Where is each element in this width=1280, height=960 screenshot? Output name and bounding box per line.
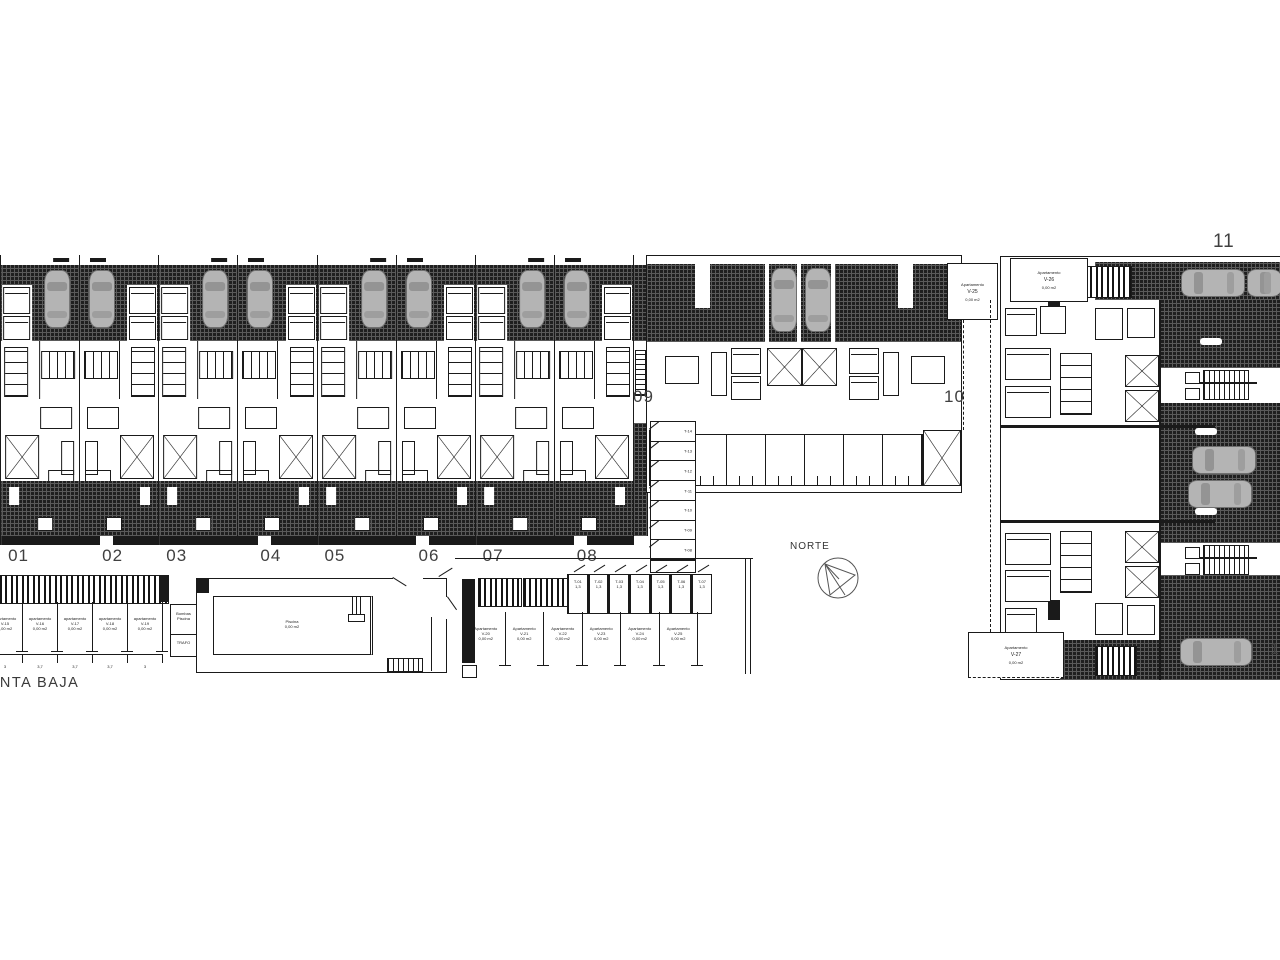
car-icon: [1188, 480, 1252, 508]
dining-table: [40, 407, 72, 429]
kitchen: [479, 347, 503, 397]
interior-wall: [277, 341, 278, 399]
pool-steps: [387, 658, 423, 672]
floor-plan-canvas: 0102030405060708 09 10: [0, 0, 1280, 960]
interior-wall: [119, 341, 120, 399]
core-foot: [462, 665, 477, 678]
bathroom-block: [1060, 531, 1092, 593]
car-icon: [519, 270, 545, 328]
parking-stall: apartamento V-18 0,00 m2: [93, 602, 128, 652]
apartment-label-box: Apartamento V-27 0,00 m2: [968, 632, 1064, 678]
townhouse-unit-plan: [80, 255, 158, 545]
dimension-value: 3: [144, 664, 146, 669]
trastero-cell: T-11: [651, 481, 695, 501]
driveway-hatch: [1160, 300, 1280, 368]
townhouse-unit: [79, 255, 158, 545]
interior-wall: [436, 341, 437, 399]
kitchen: [162, 347, 186, 397]
locker-band: [0, 575, 169, 604]
bed: [731, 348, 761, 374]
driveway-stripe: [765, 264, 769, 342]
bed: [288, 316, 315, 340]
trastero-cell: T-14: [651, 422, 695, 442]
bathroom: [358, 351, 392, 379]
bed: [3, 316, 30, 340]
trastero-size: 1,3: [610, 584, 628, 589]
trastero-code: T-10: [684, 508, 692, 513]
double-bed: [437, 435, 471, 479]
patio-hatch: [318, 481, 396, 536]
car-icon: [44, 270, 70, 328]
kitchen: [606, 347, 630, 397]
bedroom-window-slot: [319, 285, 349, 341]
patio-door-gap: [484, 487, 494, 505]
dimension-line: 3 3,7 3,7 3,7 3: [0, 654, 163, 663]
leader-line: [963, 320, 964, 430]
patio-hatch: [159, 481, 237, 536]
trastero-column: T-14 T-13 T-12 T-11 T-10 T-09 T-08: [650, 421, 696, 561]
label-title: Apartamento: [948, 282, 997, 287]
parking-stall: Apartamento V-25 0,00 m2: [660, 612, 699, 666]
label-code: V-25: [948, 289, 997, 295]
bed: [161, 287, 188, 314]
car-icon: [202, 270, 228, 328]
kitchen: [448, 347, 472, 397]
car-icon: [771, 268, 797, 332]
sofa: [883, 352, 899, 396]
patio-door-gap: [9, 487, 19, 505]
building-11: [985, 248, 1280, 680]
trastero-size: 1,3: [652, 584, 670, 589]
townhouse-unit: [396, 255, 475, 545]
base-wall: [238, 536, 316, 545]
bathroom: [559, 351, 593, 379]
terrace-window-gap: [695, 264, 710, 308]
interior-wall: [514, 341, 515, 399]
car-icon: [361, 270, 387, 328]
bathroom: [1040, 306, 1066, 334]
parking-stall: apartamento V-15 0,00 m2: [0, 602, 23, 652]
trastero-cell: T-13: [651, 442, 695, 462]
trastero-cell: T-03 1,3: [608, 574, 629, 614]
stall-area: 0,00 m2: [583, 636, 621, 641]
bedroom-window-slot: [160, 285, 190, 341]
car-icon: [1192, 446, 1256, 474]
townhouse-row: [0, 255, 634, 545]
patio-door-gap: [140, 487, 150, 505]
interior-wall: [594, 341, 595, 399]
base-wall-gap: [258, 536, 271, 545]
dining-table: [198, 407, 230, 429]
bedroom-window-slot: [286, 285, 316, 341]
trastero-cell: T-06 1,3: [670, 574, 691, 614]
terrace-window-gap: [898, 264, 913, 308]
bathroom-row: [687, 434, 923, 486]
label-title: Apartamento: [969, 645, 1063, 650]
double-bed: [1125, 355, 1159, 387]
road-marking: [1200, 338, 1222, 345]
patio-hatch: [476, 481, 554, 536]
double-bed: [1125, 390, 1159, 422]
car-icon: [564, 270, 590, 328]
double-bed: [322, 435, 356, 479]
unit-number-10: 10: [944, 387, 965, 407]
base-wall: [1, 536, 79, 545]
base-wall: [318, 536, 396, 545]
base-wall: [476, 536, 554, 545]
bathroom: [242, 351, 276, 379]
bathroom: [199, 351, 233, 379]
dining-table: [562, 407, 594, 429]
stall-area: 0,00 m2: [544, 636, 582, 641]
double-bed: [5, 435, 39, 479]
driveway-stripe: [797, 264, 801, 342]
base-wall: [80, 536, 158, 545]
patio-storage: [37, 517, 53, 531]
dining-table: [1095, 603, 1123, 635]
bed: [161, 316, 188, 340]
trastero-code: T-13: [684, 449, 692, 454]
road-marking: [1195, 428, 1217, 435]
unit-number: 01: [0, 546, 58, 566]
parking-stall: Apartamento V-23 0,00 m2: [583, 612, 622, 666]
landing-fixture: [1185, 563, 1200, 575]
stall-area: 0,00 m2: [660, 636, 698, 641]
car-icon: [89, 270, 115, 328]
trastero-size: 1,3: [672, 584, 690, 589]
car-icon: [1180, 638, 1252, 666]
interior-wall: [39, 341, 40, 399]
label-area: 0,00 m2: [1011, 285, 1087, 290]
trastero-code: T-12: [684, 468, 692, 473]
parking-stall: apartamento V-19 0,00 m2: [128, 602, 163, 652]
parking-center-zone: T-01 1,3 T-02 1,3 T-03 1,3 T-04 1,3: [455, 558, 755, 678]
bed: [1005, 308, 1037, 336]
car-icon: [805, 268, 831, 332]
trastero-code: T-11: [684, 488, 692, 493]
stall-area: 0,00 m2: [621, 636, 659, 641]
gate-gap: [444, 597, 448, 619]
parking-stall: Apartamento V-22 0,00 m2: [544, 612, 583, 666]
wall-block: [197, 579, 209, 593]
pool-ladder-base: [348, 614, 365, 622]
trastero-cell: T-01 1,3: [567, 574, 588, 614]
bed: [446, 287, 473, 314]
dining-table: [665, 356, 699, 384]
trastero-cell: T-09: [651, 521, 695, 541]
patio-storage: [423, 517, 439, 531]
townhouse-unit: [237, 255, 316, 545]
patio-door-gap: [615, 487, 625, 505]
townhouse-unit-plan: [397, 255, 475, 545]
unit-number: 05: [295, 546, 374, 566]
townhouse-unit-plan: [238, 255, 316, 545]
bedroom-window-slot: [127, 285, 157, 341]
dining-table: [1095, 308, 1123, 340]
double-bed: [163, 435, 197, 479]
double-bed: [767, 348, 802, 386]
stall-area: 0,00 m2: [467, 636, 505, 641]
base-wall: [555, 536, 633, 545]
townhouse-unit: [158, 255, 237, 545]
trastero-cell: T-05 1,3: [650, 574, 671, 614]
trastero-cell: T-07 1,3: [691, 574, 712, 614]
bedroom-window-slot: [477, 285, 507, 341]
bedroom-window-slot: [2, 285, 32, 341]
double-bed: [923, 430, 961, 486]
parking-left-stalls: apartamento V-15 0,00 m2 apartamento V-1…: [0, 602, 163, 652]
stall-area: 0,00 m2: [128, 626, 162, 631]
zone-boundary: [455, 558, 753, 559]
pool-ladder: [352, 597, 362, 614]
bed: [1005, 533, 1051, 565]
bathroom-block: [1060, 353, 1092, 415]
base-wall: [397, 536, 475, 545]
road-marking: [1195, 508, 1217, 515]
stall-area: 0,00 m2: [93, 626, 127, 631]
stall-area: 0,00 m2: [23, 626, 57, 631]
stair-arrow: [1199, 382, 1257, 384]
north-label: NORTE: [790, 541, 830, 552]
dimension-cell: 3: [0, 654, 23, 663]
dimension-cell: 3,7: [93, 654, 128, 663]
bed: [288, 287, 315, 314]
patio-storage: [512, 517, 528, 531]
double-bed: [120, 435, 154, 479]
storage-lockers: [1095, 646, 1137, 676]
compass-icon: [816, 556, 860, 600]
bathroom: [401, 351, 435, 379]
bed: [446, 316, 473, 340]
townhouse-unit-plan: [476, 255, 554, 545]
patio-door-gap: [299, 487, 309, 505]
parking-stall: Apartamento V-21 0,00 m2: [506, 612, 545, 666]
car-icon: [247, 270, 273, 328]
townhouse-unit-plan: [159, 255, 237, 545]
trastero-code: T-08: [684, 547, 692, 552]
bathroom: [516, 351, 550, 379]
dining-table: [911, 356, 945, 384]
parking-stall: apartamento V-17 0,00 m2: [58, 602, 93, 652]
bed: [731, 376, 761, 400]
double-bed: [802, 348, 837, 386]
patio-door-gap: [326, 487, 336, 505]
bed: [849, 348, 879, 374]
base-wall-gap: [416, 536, 429, 545]
patio-hatch: [1, 481, 79, 536]
stairs: [1203, 370, 1249, 400]
townhouse-unit: [554, 255, 633, 545]
trastero-code: T-09: [684, 527, 692, 532]
bed: [1005, 570, 1051, 602]
floor-title: PLANTA BAJA: [0, 675, 79, 691]
double-bed: [1125, 566, 1159, 598]
room-label: TRAFO: [171, 640, 196, 645]
townhouse-unit: [317, 255, 396, 545]
double-bed: [279, 435, 313, 479]
trastero-size: 1,3: [631, 584, 649, 589]
trafo-room: TRAFO: [170, 634, 197, 657]
bedroom-window-slot: [602, 285, 632, 341]
kitchen: [290, 347, 314, 397]
patio-storage: [195, 517, 211, 531]
locker-band: [478, 578, 522, 607]
townhouse-unit-plan: [1, 255, 79, 545]
base-wall-gap: [574, 536, 587, 545]
kitchen: [131, 347, 155, 397]
interior-wall: [356, 341, 357, 399]
bed: [478, 287, 505, 314]
bed: [604, 316, 631, 340]
stall-area: 0,00 m2: [0, 626, 22, 631]
locker-band: [523, 578, 568, 607]
pool-basin: Piscina 0,00 m2: [213, 596, 373, 655]
townhouse-unit-plan: [318, 255, 396, 545]
unit-number-09: 09: [633, 387, 654, 407]
kitchen: [321, 347, 345, 397]
double-bed: [1125, 531, 1159, 563]
service-core: [1048, 600, 1060, 620]
label-area: 0,00 m2: [969, 660, 1063, 665]
base-wall: [159, 536, 237, 545]
dimension-cell: 3,7: [23, 654, 58, 663]
bathroom: [41, 351, 75, 379]
bathroom: [84, 351, 118, 379]
dimension-value: 3,7: [107, 664, 113, 669]
trastero-cell: T-02 1,3: [588, 574, 609, 614]
parking-stall: Apartamento V-24 0,00 m2: [621, 612, 660, 666]
bed: [129, 287, 156, 314]
label-code: V-27: [969, 652, 1063, 658]
landing-fixture: [1185, 547, 1200, 559]
locker-band-cap: [160, 575, 168, 602]
kitchen: [4, 347, 28, 397]
trastero-row: T-01 1,3 T-02 1,3 T-03 1,3 T-04 1,3: [567, 565, 712, 614]
bed: [478, 316, 505, 340]
sofa: [711, 352, 727, 396]
cutoff-number: 1: [1270, 641, 1280, 659]
apartment-label-box: Apartamento V-26 0,00 m2: [1010, 258, 1088, 302]
patio-hatch: [397, 481, 475, 536]
patio-hatch: [238, 481, 316, 536]
dining-table: [404, 407, 436, 429]
bed: [604, 287, 631, 314]
pool-enclosure: Piscina 0,00 m2: [196, 578, 447, 673]
gate-leaf: [438, 568, 452, 577]
dining-table: [245, 407, 277, 429]
trastero-code: T-14: [684, 429, 692, 434]
trastero-cell: T-10: [651, 501, 695, 521]
party-wall: [1000, 425, 1215, 428]
parking-stall: apartamento V-16 0,00 m2: [23, 602, 58, 652]
dimension-cell: 3,7: [58, 654, 93, 663]
bed: [1005, 348, 1051, 380]
boundary-dashed: [990, 300, 991, 632]
patio-hatch: [80, 481, 158, 536]
dimension-cell: 3: [128, 654, 163, 663]
landing-fixture: [1185, 388, 1200, 400]
bed: [129, 316, 156, 340]
dining-table: [515, 407, 547, 429]
stair-arrow: [1199, 557, 1257, 559]
double-bed: [480, 435, 514, 479]
patio-storage: [354, 517, 370, 531]
townhouse-unit: [475, 255, 554, 545]
sofa: [1127, 308, 1155, 338]
patio-door-gap: [167, 487, 177, 505]
bed: [3, 287, 30, 314]
terrace-wall: [431, 617, 432, 671]
dining-table: [357, 407, 389, 429]
party-wall: [1000, 520, 1215, 523]
patio-door-gap: [457, 487, 467, 505]
trastero-cell: T-04 1,3: [629, 574, 650, 614]
townhouse-unit-plan: [555, 255, 633, 545]
parking-center-stalls: Apartamento V-20 0,00 m2 Apartamento V-2…: [467, 612, 698, 666]
dimension-value: 3,7: [37, 664, 43, 669]
base-wall-gap: [100, 536, 113, 545]
parking-stall: Apartamento V-20 0,00 m2: [467, 612, 506, 666]
patio-storage: [581, 517, 597, 531]
stall-area: 0,00 m2: [58, 626, 92, 631]
unit-number: 03: [137, 546, 216, 566]
label-code: V-26: [1011, 277, 1087, 283]
patio-storage: [106, 517, 122, 531]
room-label: Piscina: [171, 616, 196, 621]
bed: [320, 316, 347, 340]
stairs: [1203, 545, 1249, 575]
bedroom-window-slot: [444, 285, 474, 341]
townhouse-unit: [0, 255, 79, 545]
driveway-stripe: [831, 264, 835, 342]
patio-storage: [264, 517, 280, 531]
pool-area: 0,00 m2: [214, 624, 370, 629]
bed: [849, 376, 879, 400]
trastero-size: 1,3: [569, 584, 587, 589]
bed: [320, 287, 347, 314]
sofa: [1127, 605, 1155, 635]
bed: [1005, 386, 1051, 418]
boundary-wall: [745, 558, 751, 674]
trastero-size: 1,3: [693, 584, 711, 589]
car-icon: [1247, 269, 1280, 297]
trastero-cell: T-12: [651, 461, 695, 481]
landing-fixture: [1185, 372, 1200, 384]
label-title: Apartamento: [1011, 270, 1087, 275]
dimension-value: 3: [4, 664, 6, 669]
patio-hatch: [555, 481, 633, 536]
dimension-value: 3,7: [72, 664, 78, 669]
trastero-size: 1,3: [590, 584, 608, 589]
car-icon: [406, 270, 432, 328]
double-bed: [595, 435, 629, 479]
facade-wall: [1159, 300, 1161, 680]
pool-pump-room: Bombas Piscina: [170, 604, 197, 638]
car-icon: [1181, 269, 1245, 297]
stall-area: 0,00 m2: [506, 636, 544, 641]
dining-table: [87, 407, 119, 429]
